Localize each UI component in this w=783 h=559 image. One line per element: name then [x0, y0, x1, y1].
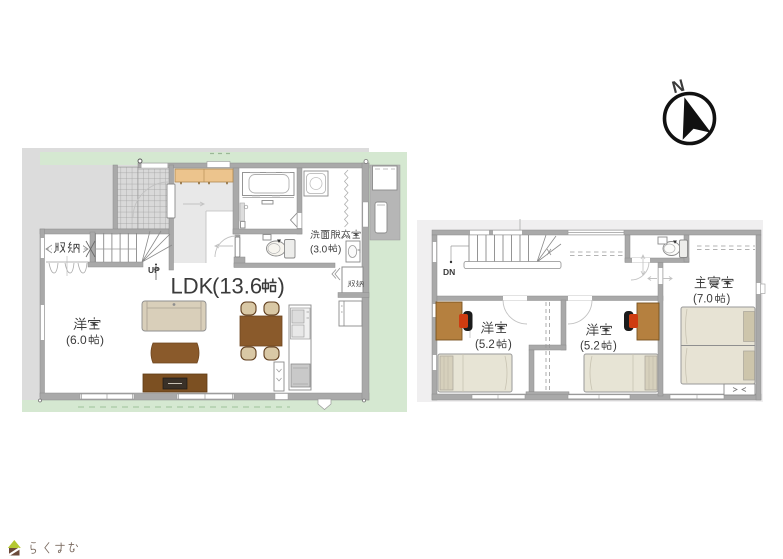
- svg-text:(6.0: (6.0: [66, 333, 87, 347]
- svg-text:): ): [100, 333, 104, 347]
- svg-text:): ): [508, 339, 512, 351]
- svg-text:(3.0: (3.0: [310, 245, 328, 256]
- svg-text:): ): [278, 274, 285, 299]
- svg-text:): ): [338, 245, 341, 256]
- svg-text:): ): [613, 341, 617, 353]
- svg-text:(5.2: (5.2: [580, 341, 600, 353]
- svg-text:(5.2: (5.2: [475, 339, 495, 351]
- svg-text:(7.0: (7.0: [693, 294, 713, 306]
- svg-text:): ): [727, 294, 731, 306]
- svg-text:(13.6: (13.6: [212, 274, 262, 299]
- svg-text:LDK: LDK: [171, 274, 214, 299]
- svg-text:DN: DN: [443, 267, 455, 277]
